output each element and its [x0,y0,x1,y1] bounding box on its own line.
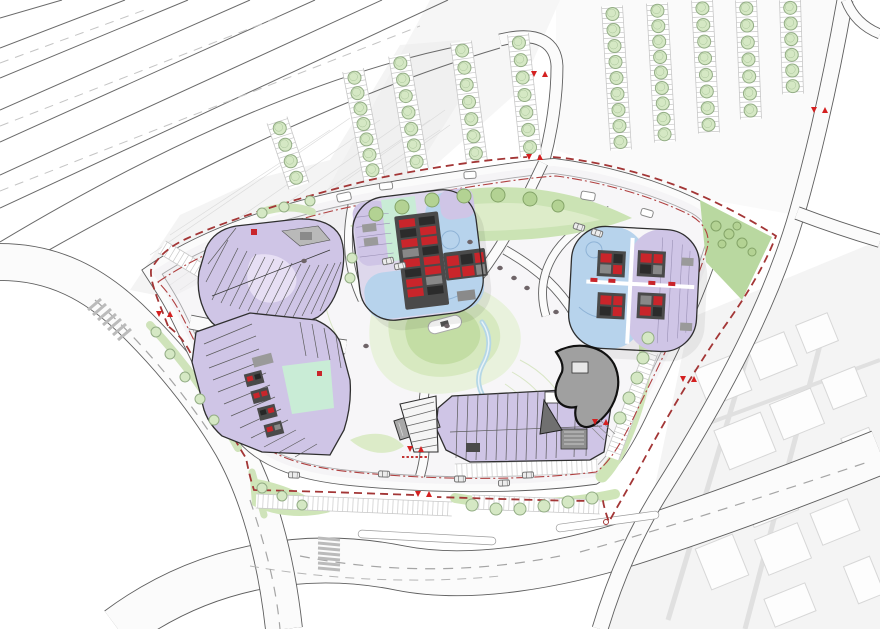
car-icon [378,471,389,477]
east-green-wedge [700,200,772,300]
tree-icon [399,90,412,103]
tree-icon [699,68,712,81]
highway-lane-line [0,0,62,18]
tree-icon [279,202,289,212]
tree-icon [491,188,505,202]
tree-icon [785,48,798,61]
tree-icon [701,102,714,115]
tree-icon [612,104,625,117]
tree-icon [651,4,664,17]
tree-icon [699,52,712,65]
tree-icon [345,273,355,283]
tree-icon [348,71,361,84]
plaza-bollard-dot [301,259,307,263]
tree-icon [785,33,798,46]
kiosk-structure [464,171,476,179]
highway-lane-line [0,0,315,142]
tree-icon [397,73,410,86]
up-triangle-icon [426,491,432,497]
tree-icon [151,327,161,337]
tree-icon [700,85,713,98]
tree-icon [347,253,357,263]
tree-icon [360,133,373,146]
tree-icon [606,8,619,21]
tree-icon [395,200,409,214]
tree-icon [523,192,537,206]
tree-icon [460,78,473,91]
tree-icon [369,207,383,221]
tree-icon [357,118,370,131]
tree-icon [741,36,754,49]
tree-icon [514,503,526,515]
entry-marker [156,311,173,317]
parking-row [736,0,762,119]
kiosk-structure [580,191,595,201]
tree-icon [740,2,753,15]
site-plan-canvas [0,0,880,629]
tree-icon [586,492,598,504]
car-icon [455,476,466,482]
tree-icon [696,2,709,15]
tree-icon [366,164,379,177]
tree-icon [463,96,476,109]
building-office-tower-center [349,185,495,334]
tree-icon [637,352,649,364]
tree-icon [456,44,469,57]
tree-icon [402,106,415,119]
tree-icon [653,35,666,48]
tree-icon [711,221,721,231]
tree-icon [305,196,315,206]
tree-icon [522,123,535,136]
tree-icon [290,171,303,184]
tree-icon [614,136,627,149]
tree-icon [610,72,623,85]
tree-icon [425,193,439,207]
plaza-bollard-dot [524,286,530,290]
car-icon [522,472,533,478]
tree-icon [654,51,667,64]
building-retail-block-northwest [198,219,344,331]
tree-icon [786,64,799,77]
tree-icon [744,104,757,117]
tree-icon [656,97,669,110]
plaza-bollard-dot [444,324,450,328]
tree-icon [718,240,726,248]
tree-icon [514,54,527,67]
tree-icon [520,106,533,119]
tree-icon [518,89,531,102]
car-icon [288,472,299,479]
tree-icon [642,332,654,344]
tree-icon [279,138,292,151]
tree-icon [786,80,799,93]
tree-icon [284,155,297,168]
tree-icon [743,70,756,83]
parking-row [780,0,804,94]
tree-icon [737,238,747,248]
tree-icon [516,71,529,84]
highway-lane-dash [0,16,282,126]
tree-icon [611,88,624,101]
tree-icon [623,392,635,404]
tree-icon [512,36,525,49]
tree-icon [608,40,621,53]
tree-icon [465,113,478,126]
tree-icon [257,208,267,218]
tree-icon [655,81,668,94]
tree-icon [351,87,364,100]
tree-icon [552,200,564,212]
highway-lane-line [0,0,250,110]
tree-icon [257,483,267,493]
tree-icon [354,102,367,115]
core-red-marker [251,229,257,235]
plaza-bollard-dot [553,310,559,314]
building-office-tower-east [567,225,709,364]
tree-icon [741,19,754,32]
tree-icon [458,61,471,74]
plaza-bollard-dot [511,276,517,280]
tree-icon [562,496,574,508]
tree-icon [702,118,715,131]
median-island [362,534,492,541]
highway-lane-dash [0,8,150,63]
tree-icon [607,24,620,37]
tree-icon [538,500,550,512]
tree-icon [614,412,626,424]
plaza-bollard-dot [467,240,473,244]
down-triangle-icon [156,311,162,317]
plaza-bollard-dot [363,344,369,348]
tree-icon [405,122,418,135]
tree-icon [490,503,502,515]
tree-icon [631,372,643,384]
entry-marker [531,71,548,77]
tree-icon [698,35,711,48]
up-triangle-icon [542,71,548,77]
tree-icon [743,87,756,100]
tree-icon [407,139,420,152]
tree-icon [410,155,423,168]
tree-icon [613,120,626,133]
tree-icon [394,57,407,70]
tree-icon [297,500,307,510]
tree-icon [180,372,190,382]
tree-icon [524,141,537,154]
tree-icon [657,112,670,125]
tree-icon [724,229,734,239]
plaza-bollard-dot [497,266,503,270]
tree-icon [658,128,671,141]
tree-icon [655,66,668,79]
tree-icon [609,56,622,69]
tree-icon [469,147,482,160]
down-triangle-icon [415,491,421,497]
tree-icon [784,17,797,30]
tree-icon [277,491,287,501]
tree-icon [466,499,478,511]
tree-icon [784,1,797,14]
tree-icon [733,222,741,230]
tree-icon [697,18,710,31]
tree-icon [748,248,756,256]
site-plan-drawing [0,0,880,629]
tree-icon [195,394,205,404]
tree-icon [457,189,471,203]
tree-icon [363,148,376,161]
tree-icon [209,415,219,425]
car-icon [498,480,509,486]
tree-icon [467,130,480,143]
kiosk-structure [379,182,393,190]
entry-marker [415,491,432,497]
stall-strip-surface [455,466,598,471]
tree-icon [742,53,755,66]
tree-icon [652,20,665,33]
road-east-branch-surface [797,213,880,241]
tree-icon [165,349,175,359]
tree-icon [273,122,286,135]
